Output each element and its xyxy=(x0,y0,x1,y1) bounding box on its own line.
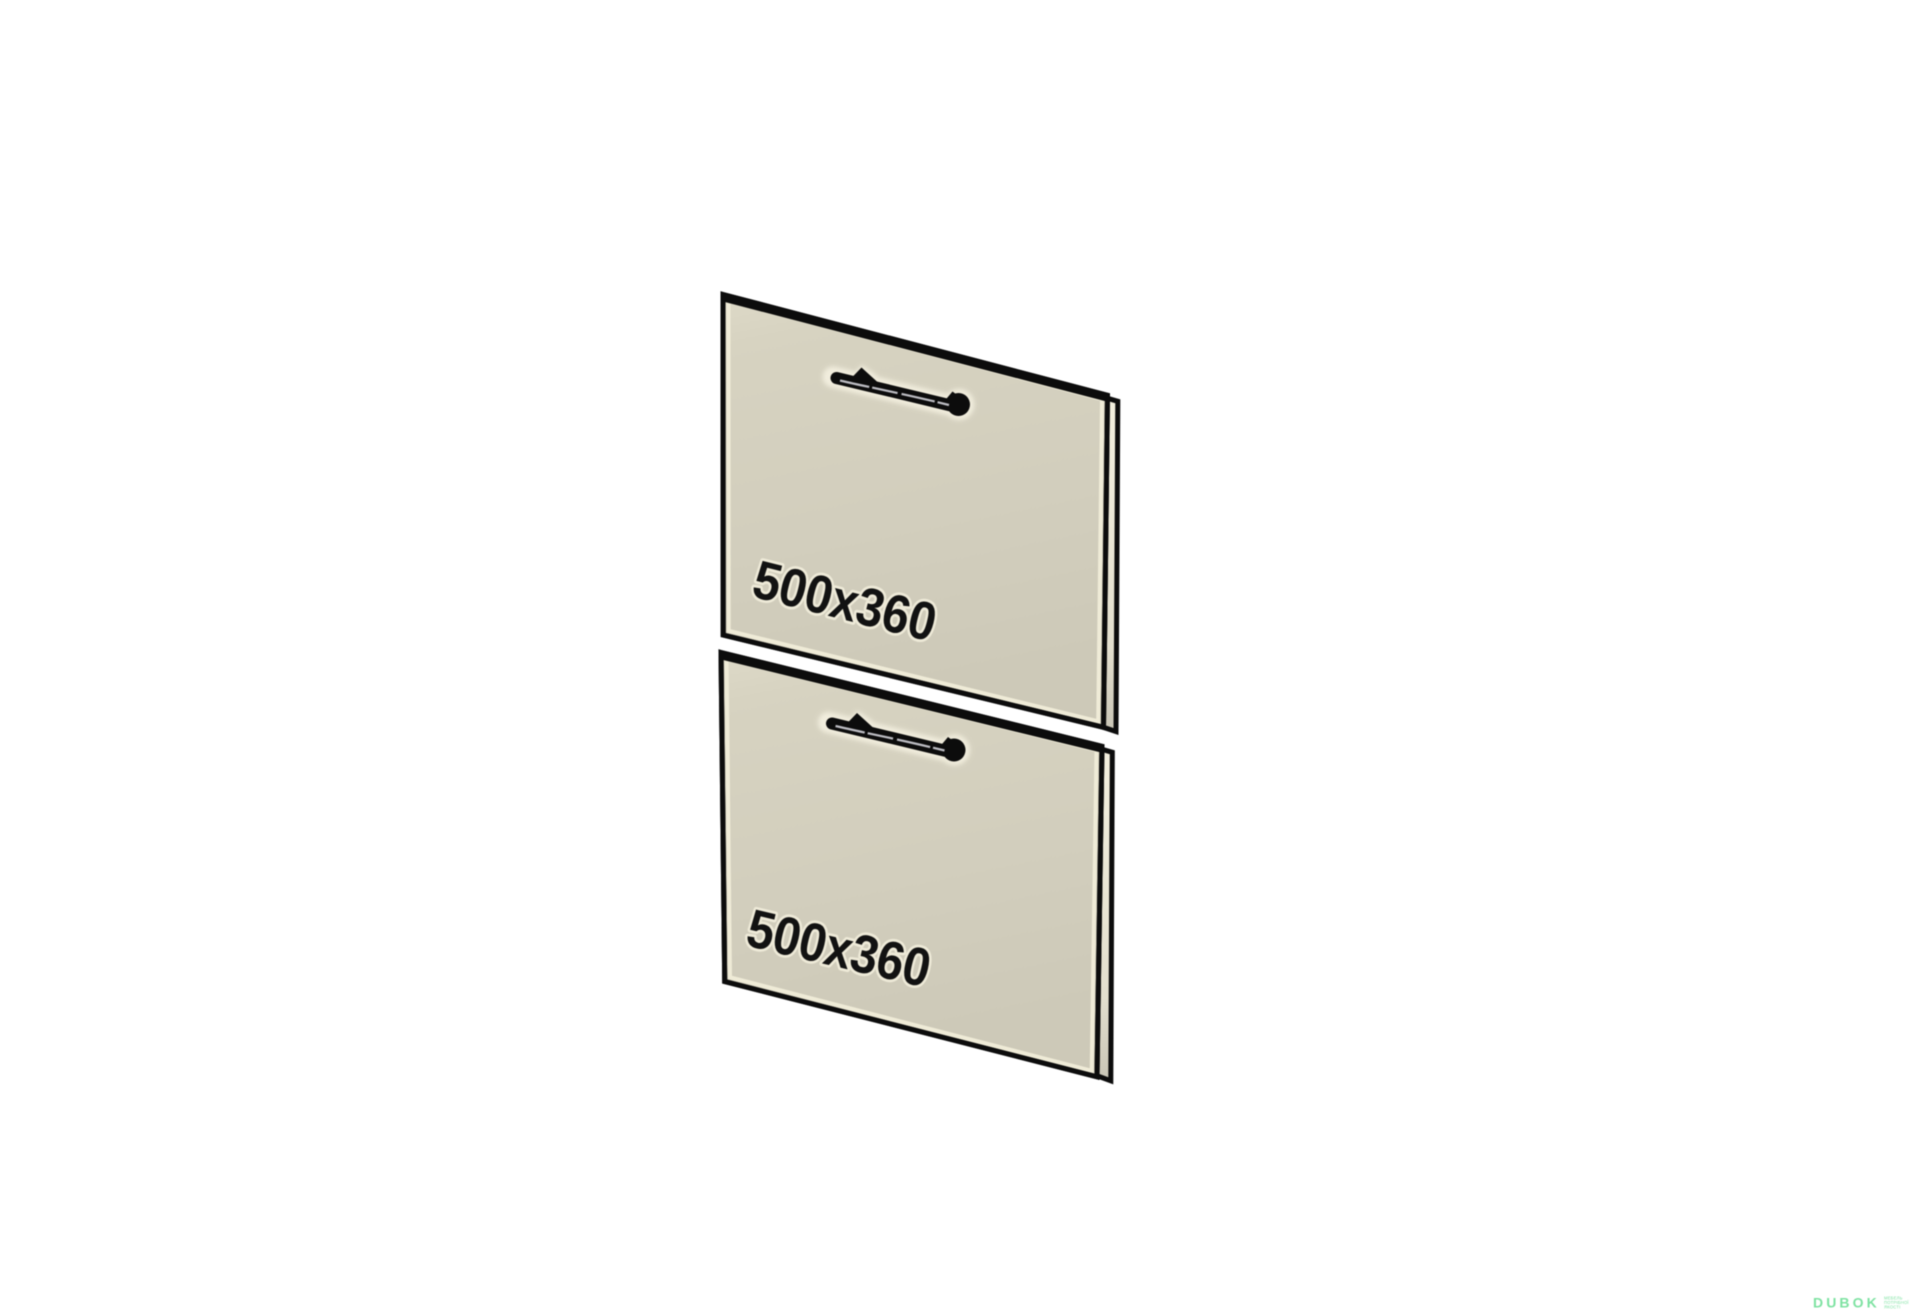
svg-text:DUBOK: DUBOK xyxy=(1813,1295,1880,1311)
svg-text:ЯКОСТІ: ЯКОСТІ xyxy=(1884,1305,1900,1310)
